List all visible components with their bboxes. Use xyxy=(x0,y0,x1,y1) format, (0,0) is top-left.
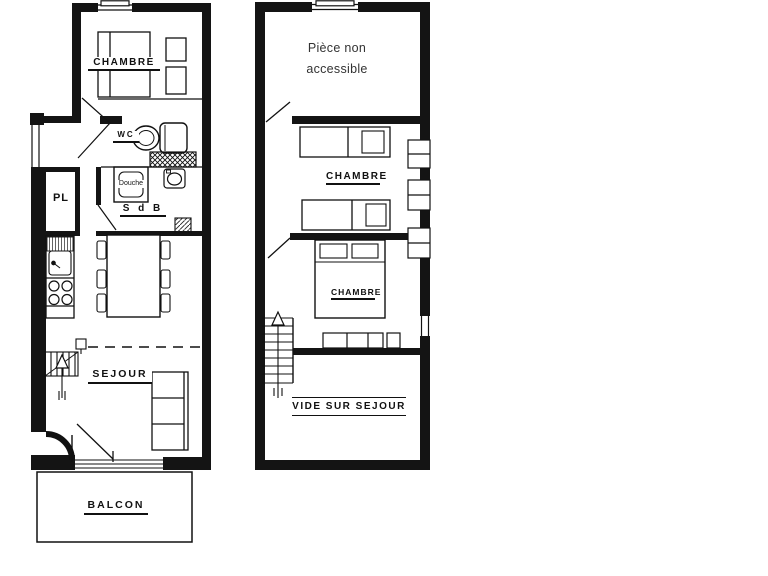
vent-crosshatch-icon xyxy=(150,152,196,167)
sejour-boundary xyxy=(76,339,201,354)
floorplan-page: CHAMBRE WC Douche S d B PL SEJOUR BALCON… xyxy=(0,0,768,576)
label-chambre-upper-1: CHAMBRE xyxy=(326,171,380,185)
balcony-door-swing-icon xyxy=(77,424,113,462)
label-chambre-ground: CHAMBRE xyxy=(88,57,160,71)
stairs-icon xyxy=(262,312,293,398)
floorplan-drawing xyxy=(0,0,768,576)
label-douche: Douche xyxy=(116,180,146,188)
label-wc: WC xyxy=(113,131,139,143)
label-piece-non-accessible: Pièce non accessible xyxy=(297,38,377,79)
double-bed-icon xyxy=(315,240,385,318)
balcony-threshold xyxy=(75,460,163,468)
cabinet-icon xyxy=(323,333,400,348)
label-chambre-upper-2: CHAMBRE xyxy=(331,288,375,300)
door-swing-icon xyxy=(266,102,290,258)
label-sejour: SEJOUR xyxy=(88,369,152,384)
window-top-icon xyxy=(98,1,132,10)
kitchen-counter-icon xyxy=(46,236,74,318)
nightstand-icon xyxy=(166,38,186,94)
washbasin-icon xyxy=(164,169,185,188)
sofa-icon xyxy=(152,372,188,450)
toilet-icon xyxy=(133,123,187,153)
radiator-icon xyxy=(175,218,191,232)
kitchen-sink-icon xyxy=(49,251,71,275)
label-balcon: BALCON xyxy=(84,500,148,515)
label-placard: PL xyxy=(47,192,75,204)
label-salle-de-bain: S d B xyxy=(120,203,166,217)
window-left-icon xyxy=(32,125,39,167)
stairs-icon xyxy=(45,352,78,400)
label-vide-sur-sejour: VIDE SUR SEJOUR xyxy=(292,397,406,416)
window-top-icon xyxy=(312,1,358,10)
dining-table-icon xyxy=(107,235,160,317)
ground-floor-plan xyxy=(30,1,211,542)
stove-icon xyxy=(49,281,72,305)
